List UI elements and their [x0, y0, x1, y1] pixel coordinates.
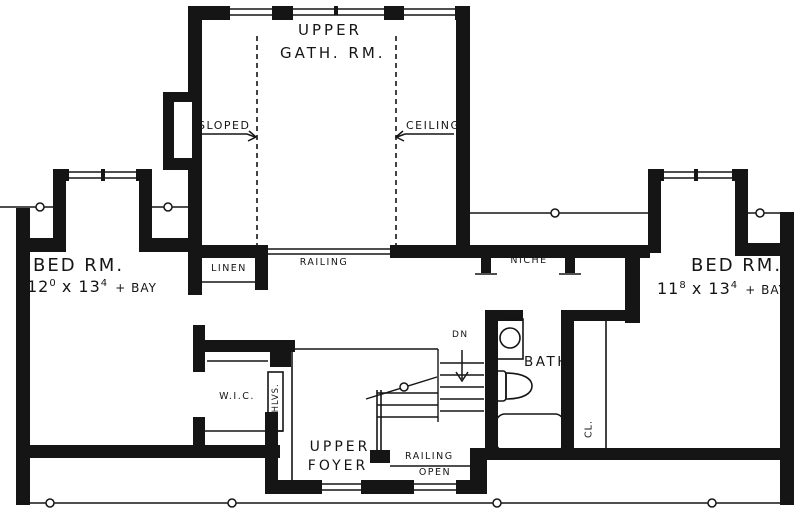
break-loop-icon	[708, 499, 716, 507]
label-ceiling: CEILING	[406, 120, 461, 131]
dim-value: 13	[708, 279, 730, 298]
break-loop-icon	[551, 209, 559, 217]
bedroom-left-dimensions: 120 x 134 + BAY	[27, 279, 157, 295]
label-railing-gathering: RAILING	[294, 258, 354, 268]
dim-value: 13	[78, 277, 100, 296]
stairs	[366, 349, 484, 422]
dim-value: 12	[27, 277, 49, 296]
gathering-room-label-line1: UPPER	[290, 23, 370, 38]
break-loop-icon	[228, 499, 236, 507]
dim-sup: 4	[101, 278, 107, 289]
dim-times: x	[692, 279, 702, 298]
sink-counter	[497, 319, 523, 359]
foyer-label-line2: FOYER	[298, 459, 378, 473]
dim-value: 11	[657, 279, 679, 298]
wic-label: W.I.C.	[213, 392, 261, 402]
bedroom-right-dimensions: 118 x 134 + BAY	[657, 281, 787, 297]
sloped-ceiling-dashed-lines	[257, 36, 396, 247]
dim-suffix: + BAY	[115, 281, 157, 295]
bath-fixtures	[493, 319, 564, 451]
sink-bowl	[500, 328, 520, 348]
label-shelves: SHLVS.	[272, 383, 281, 419]
dim-sup: 0	[49, 278, 55, 289]
label-closet: CL.	[584, 420, 594, 438]
break-loop-icon	[46, 499, 54, 507]
label-linen: LINEN	[203, 264, 255, 274]
label-down: DN	[452, 331, 469, 340]
label-railing-stairs: RAILING	[405, 452, 454, 462]
label-sloped: SLOPED	[198, 120, 250, 131]
break-loop-icon	[493, 499, 501, 507]
bath-label: BATH	[524, 356, 570, 370]
break-loop-icon	[164, 203, 172, 211]
dim-sup: 8	[679, 280, 685, 291]
dim-sup: 4	[731, 280, 737, 291]
gathering-room-label-line2: GATH. RM.	[280, 46, 380, 61]
bedroom-left-label: BED RM.	[33, 257, 124, 275]
dim-suffix: + BAY	[745, 283, 787, 297]
toilet-bowl	[506, 373, 532, 399]
bedroom-right-label: BED RM.	[691, 257, 782, 275]
walls-layer	[16, 6, 794, 505]
foyer-label-line1: UPPER	[300, 440, 380, 454]
chimney-inner	[174, 102, 192, 158]
floor-plan: UPPER GATH. RM. SLOPED CEILING RAILING L…	[0, 0, 800, 515]
bathtub	[496, 414, 564, 451]
break-loop-icon	[756, 209, 764, 217]
break-loop-icon	[400, 383, 408, 391]
dim-times: x	[62, 277, 72, 296]
label-open: OPEN	[413, 468, 457, 478]
label-niche: NICHE	[503, 256, 555, 266]
break-loop-icon	[36, 203, 44, 211]
